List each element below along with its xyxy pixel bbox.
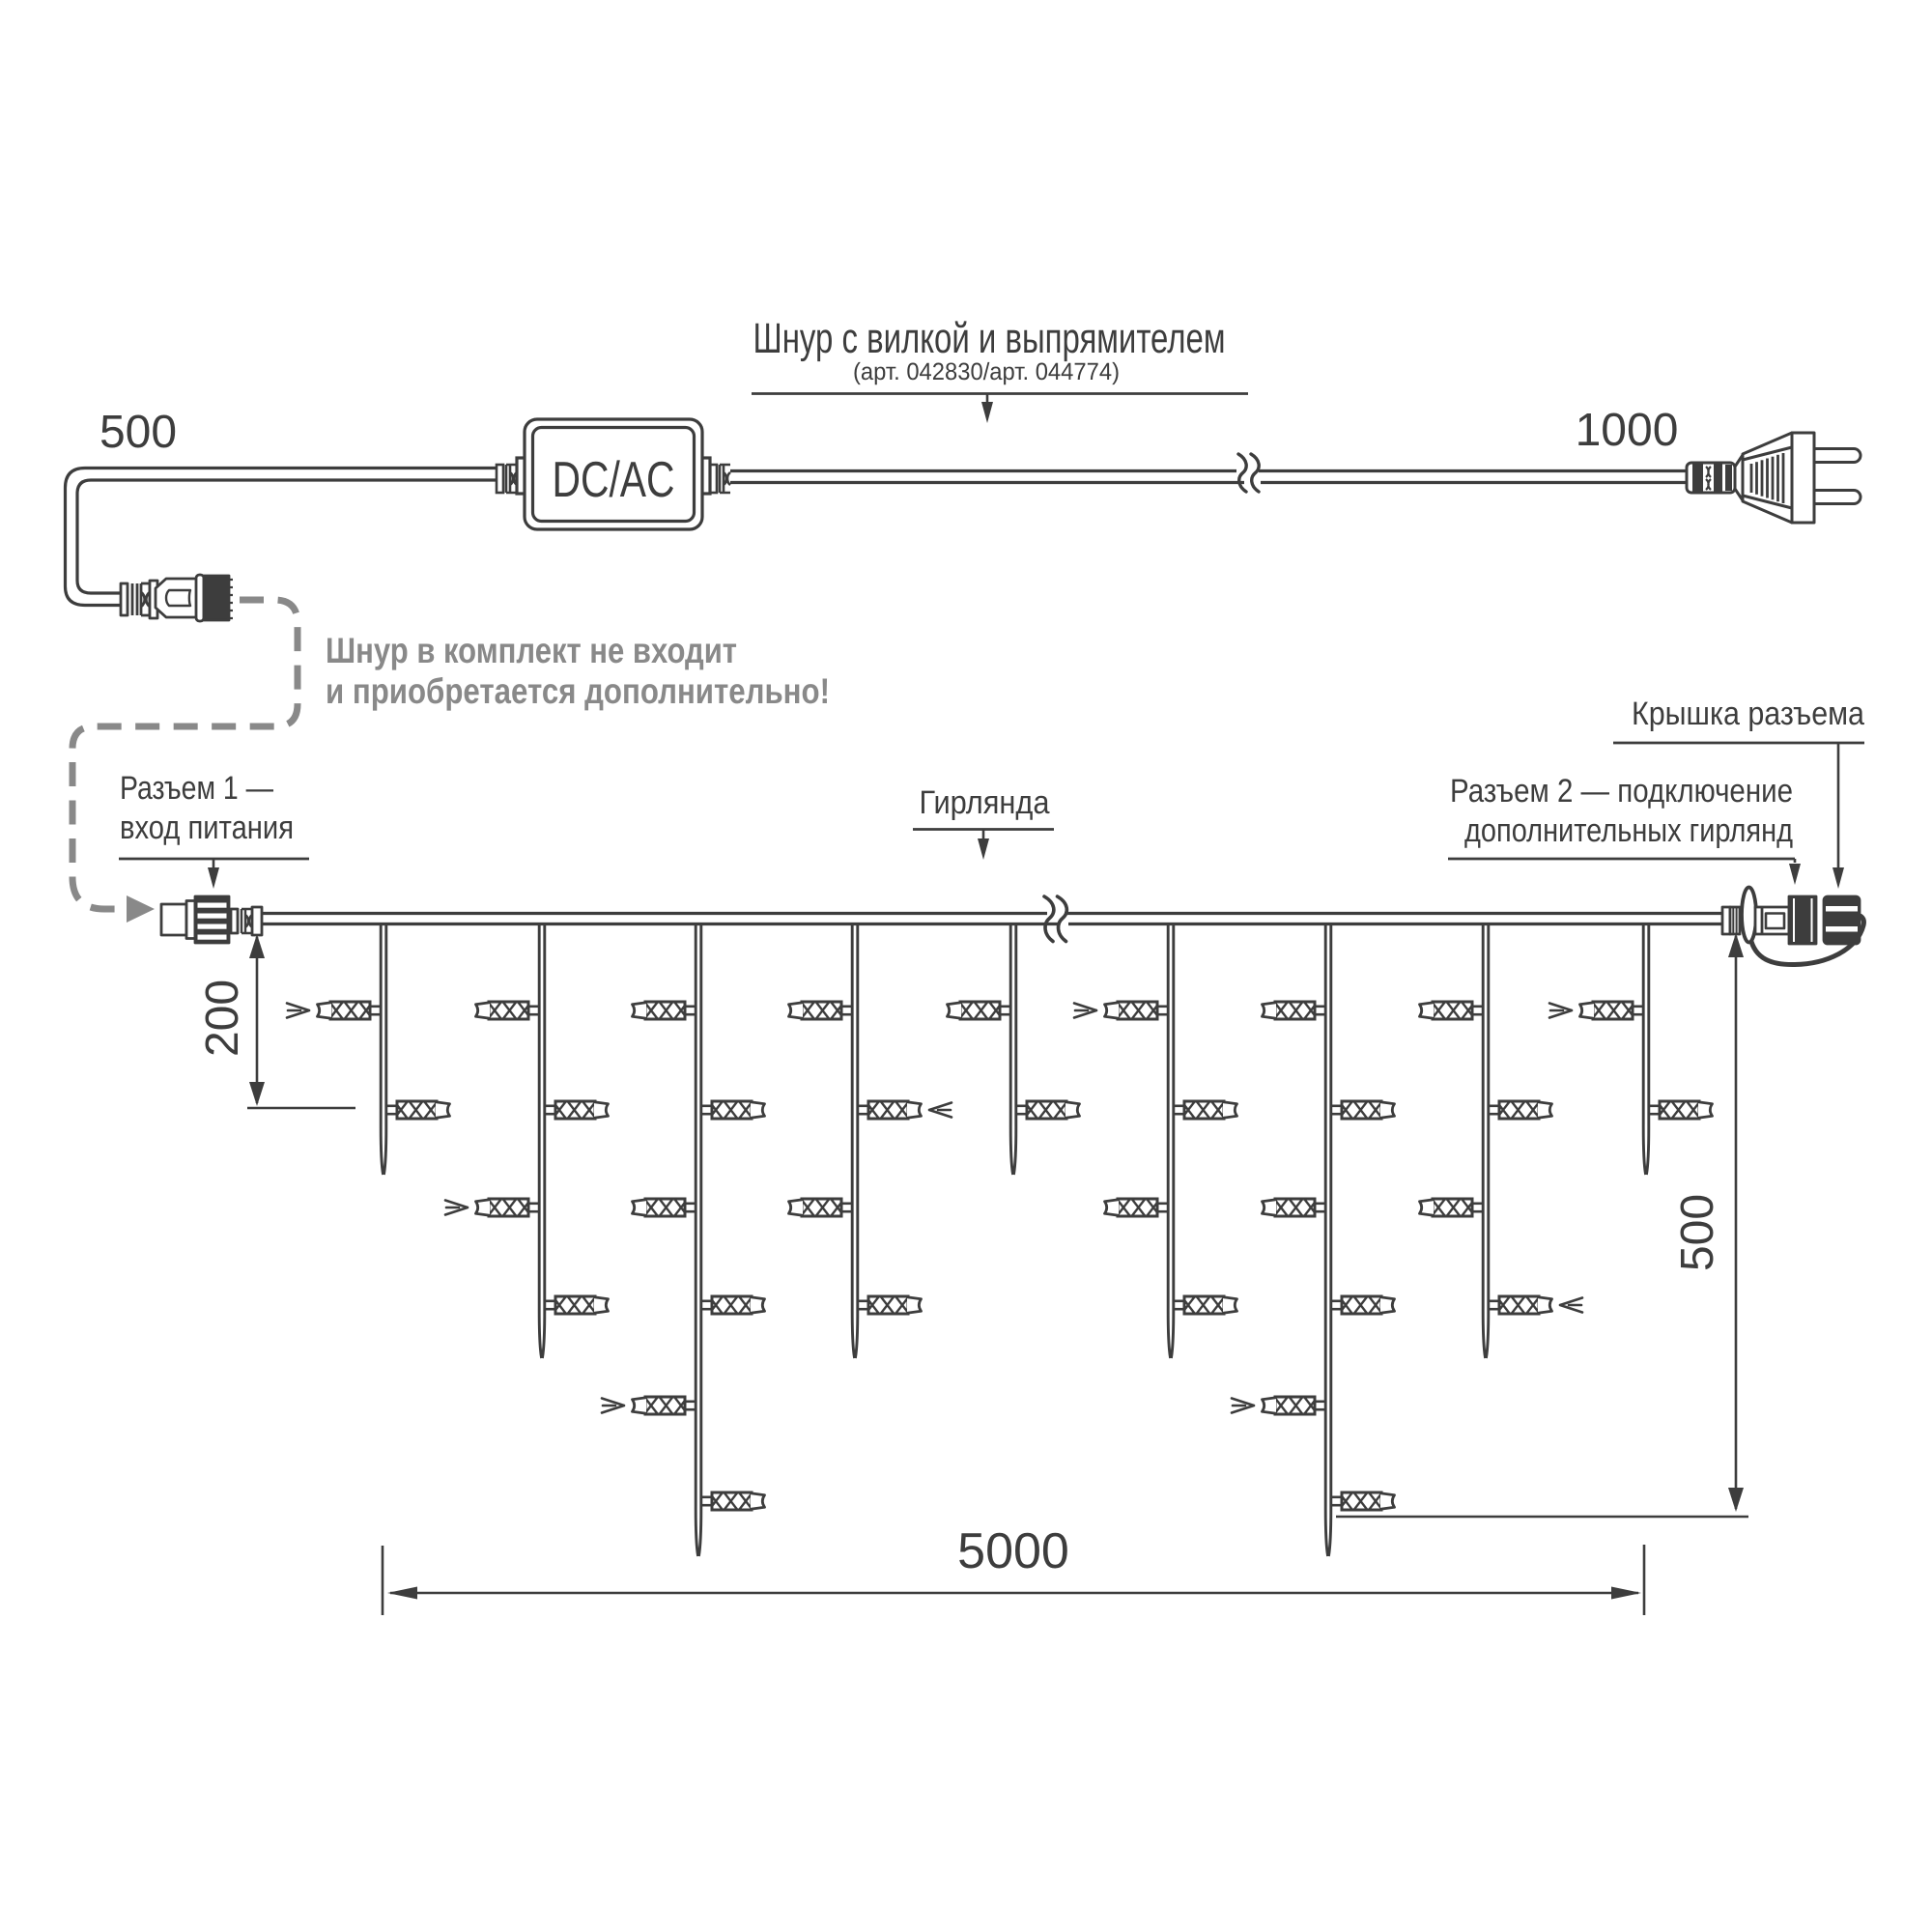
svg-text:200: 200 [197, 980, 248, 1057]
svg-text:500: 500 [1672, 1194, 1723, 1271]
svg-text:Разъем 2 — подключение: Разъем 2 — подключение [1450, 773, 1793, 810]
svg-text:(арт. 042830/арт. 044774): (арт. 042830/арт. 044774) [853, 358, 1120, 385]
svg-text:Гирлянда: Гирлянда [920, 784, 1050, 821]
svg-text:5000: 5000 [957, 1523, 1069, 1579]
svg-text:Шнур в комплект не входит: Шнур в комплект не входит [326, 631, 737, 670]
svg-text:Разъем 1 —: Разъем 1 — [120, 770, 273, 807]
svg-text:Крышка разъема: Крышка разъема [1632, 696, 1864, 732]
svg-text:и приобретается дополнительно!: и приобретается дополнительно! [326, 671, 830, 711]
svg-text:DC/AC: DC/AC [553, 452, 675, 508]
svg-text:дополнительных гирлянд: дополнительных гирлянд [1464, 812, 1793, 849]
svg-text:вход питания: вход питания [120, 810, 294, 846]
svg-text:Шнур с вилкой и выпрямителем: Шнур с вилкой и выпрямителем [753, 315, 1226, 362]
svg-text:1000: 1000 [1576, 405, 1679, 456]
svg-text:500: 500 [99, 407, 177, 458]
